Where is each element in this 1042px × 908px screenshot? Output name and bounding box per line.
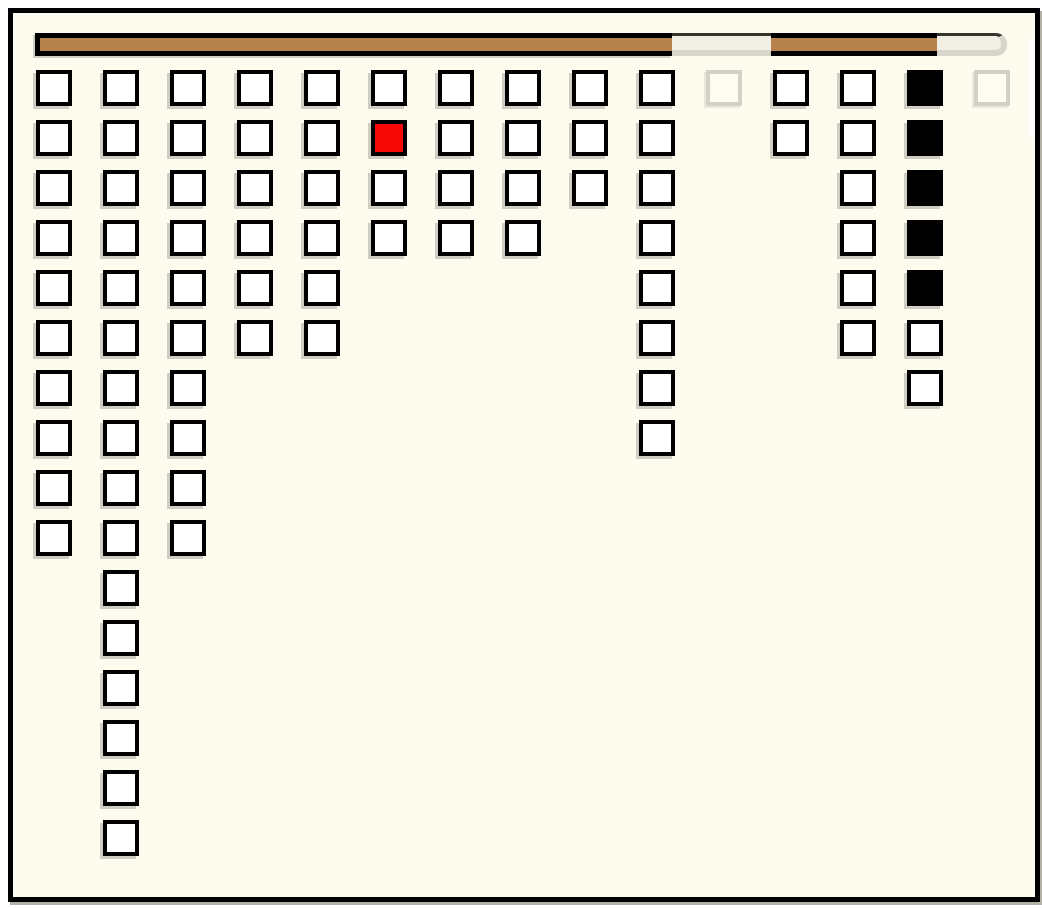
cell-col3-row4-normal[interactable] [170, 220, 206, 256]
cell-col3-row5-normal[interactable] [170, 270, 206, 306]
cell-col13-row5-normal[interactable] [840, 270, 876, 306]
cell-col5-row6-normal[interactable] [304, 320, 340, 356]
cell-col10-row8-normal[interactable] [639, 420, 675, 456]
cell-col5-row2-normal[interactable] [304, 120, 340, 156]
cell-col9-row3-normal[interactable] [572, 170, 608, 206]
cell-col8-row1-normal[interactable] [505, 70, 541, 106]
cell-col7-row4-normal[interactable] [438, 220, 474, 256]
cell-col5-row4-normal[interactable] [304, 220, 340, 256]
cell-col2-row5-normal[interactable] [103, 270, 139, 306]
edge-artifact [1029, 38, 1034, 138]
cell-col4-row6-normal[interactable] [237, 320, 273, 356]
cell-col3-row7-normal[interactable] [170, 370, 206, 406]
cell-col1-row2-normal[interactable] [36, 120, 72, 156]
cell-col2-row15-normal[interactable] [103, 770, 139, 806]
cell-col4-row2-normal[interactable] [237, 120, 273, 156]
cell-col3-row3-normal[interactable] [170, 170, 206, 206]
cell-col2-row16-normal[interactable] [103, 820, 139, 856]
cell-col2-row11-normal[interactable] [103, 570, 139, 606]
cell-col3-row9-normal[interactable] [170, 470, 206, 506]
cell-col2-row3-normal[interactable] [103, 170, 139, 206]
cell-col5-row5-normal[interactable] [304, 270, 340, 306]
cell-col15-row1-ghost [974, 70, 1010, 106]
cell-col14-row3-black[interactable] [907, 170, 943, 206]
cell-col6-row1-normal[interactable] [371, 70, 407, 106]
cell-col4-row1-normal[interactable] [237, 70, 273, 106]
cell-col12-row2-normal[interactable] [773, 120, 809, 156]
cell-col2-row10-normal[interactable] [103, 520, 139, 556]
cell-col6-row2-red[interactable] [371, 120, 407, 156]
cell-col14-row5-black[interactable] [907, 270, 943, 306]
cell-col4-row5-normal[interactable] [237, 270, 273, 306]
cell-col1-row4-normal[interactable] [36, 220, 72, 256]
game-board [0, 0, 1042, 908]
cell-col13-row6-normal[interactable] [840, 320, 876, 356]
cell-col5-row3-normal[interactable] [304, 170, 340, 206]
cell-col10-row5-normal[interactable] [639, 270, 675, 306]
cell-col14-row2-black[interactable] [907, 120, 943, 156]
cell-col13-row1-normal[interactable] [840, 70, 876, 106]
cell-col2-row14-normal[interactable] [103, 720, 139, 756]
cell-col14-row4-black[interactable] [907, 220, 943, 256]
cell-col1-row1-normal[interactable] [36, 70, 72, 106]
cell-col2-row2-normal[interactable] [103, 120, 139, 156]
cell-col9-row1-normal[interactable] [572, 70, 608, 106]
cell-col1-row6-normal[interactable] [36, 320, 72, 356]
cell-col9-row2-normal[interactable] [572, 120, 608, 156]
cell-col14-row7-normal[interactable] [907, 370, 943, 406]
cell-col1-row7-normal[interactable] [36, 370, 72, 406]
cell-col2-row4-normal[interactable] [103, 220, 139, 256]
cell-col10-row3-normal[interactable] [639, 170, 675, 206]
cell-col10-row1-normal[interactable] [639, 70, 675, 106]
cell-col2-row1-normal[interactable] [103, 70, 139, 106]
cell-col10-row2-normal[interactable] [639, 120, 675, 156]
cell-col1-row9-normal[interactable] [36, 470, 72, 506]
cell-col4-row4-normal[interactable] [237, 220, 273, 256]
cell-col8-row2-normal[interactable] [505, 120, 541, 156]
cell-col5-row1-normal[interactable] [304, 70, 340, 106]
cell-col13-row3-normal[interactable] [840, 170, 876, 206]
cell-col2-row6-normal[interactable] [103, 320, 139, 356]
cell-col8-row4-normal[interactable] [505, 220, 541, 256]
cell-col3-row6-normal[interactable] [170, 320, 206, 356]
cell-col2-row8-normal[interactable] [103, 420, 139, 456]
cell-col2-row13-normal[interactable] [103, 670, 139, 706]
cell-col10-row4-normal[interactable] [639, 220, 675, 256]
cell-col1-row5-normal[interactable] [36, 270, 72, 306]
cell-col10-row7-normal[interactable] [639, 370, 675, 406]
screenshot-root [0, 0, 1042, 908]
cell-col13-row4-normal[interactable] [840, 220, 876, 256]
cell-col6-row4-normal[interactable] [371, 220, 407, 256]
cell-col12-row1-normal[interactable] [773, 70, 809, 106]
cell-col7-row1-normal[interactable] [438, 70, 474, 106]
cell-col13-row2-normal[interactable] [840, 120, 876, 156]
cell-col1-row3-normal[interactable] [36, 170, 72, 206]
cell-col8-row3-normal[interactable] [505, 170, 541, 206]
cell-col10-row6-normal[interactable] [639, 320, 675, 356]
cell-col3-row2-normal[interactable] [170, 120, 206, 156]
cell-col3-row1-normal[interactable] [170, 70, 206, 106]
cell-col2-row9-normal[interactable] [103, 470, 139, 506]
cell-col4-row3-normal[interactable] [237, 170, 273, 206]
cell-col11-row1-ghost [706, 70, 742, 106]
cell-col3-row10-normal[interactable] [170, 520, 206, 556]
cell-col1-row8-normal[interactable] [36, 420, 72, 456]
cell-col6-row3-normal[interactable] [371, 170, 407, 206]
cell-col7-row2-normal[interactable] [438, 120, 474, 156]
cell-col14-row6-normal[interactable] [907, 320, 943, 356]
cell-col2-row7-normal[interactable] [103, 370, 139, 406]
cell-col7-row3-normal[interactable] [438, 170, 474, 206]
cell-col14-row1-black[interactable] [907, 70, 943, 106]
cell-col3-row8-normal[interactable] [170, 420, 206, 456]
cell-col2-row12-normal[interactable] [103, 620, 139, 656]
cell-col1-row10-normal[interactable] [36, 520, 72, 556]
